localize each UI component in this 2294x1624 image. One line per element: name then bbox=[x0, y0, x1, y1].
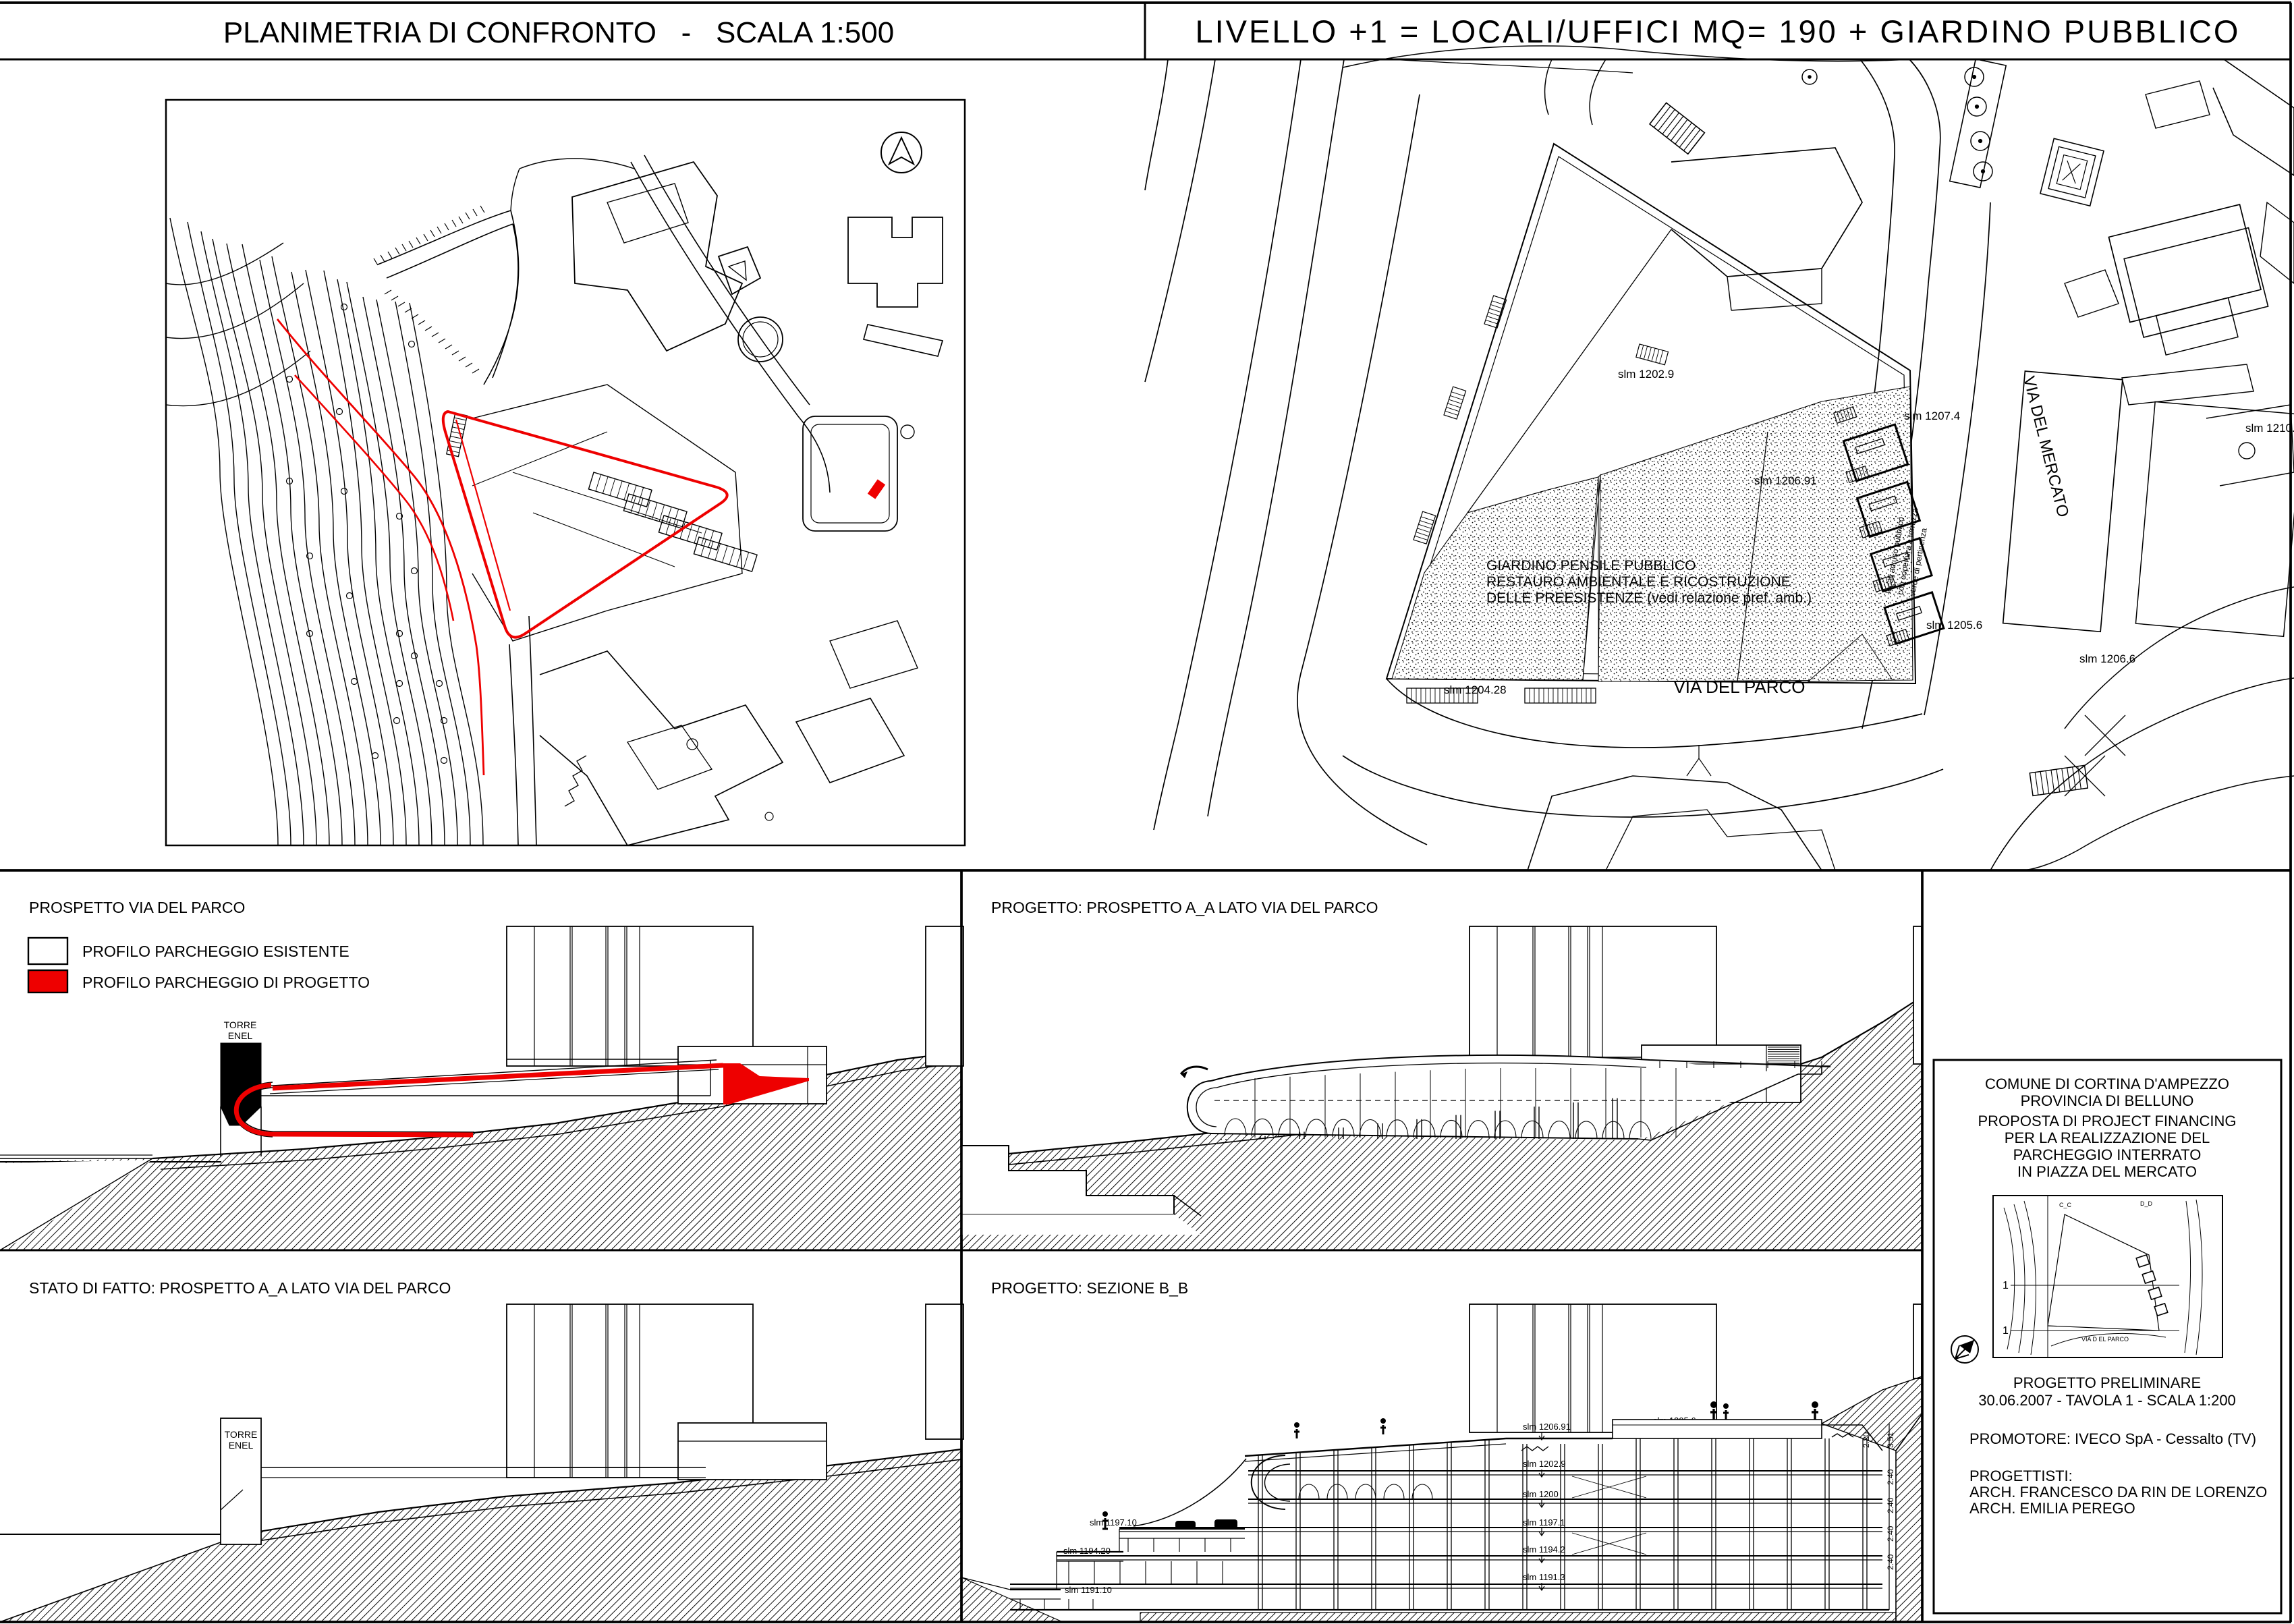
svg-text:PER LA REALIZZAZIONE DEL: PER LA REALIZZAZIONE DEL bbox=[2005, 1129, 2210, 1146]
svg-text:ENEL: ENEL bbox=[229, 1440, 254, 1451]
svg-text:slm 1200: slm 1200 bbox=[1523, 1489, 1559, 1499]
svg-text:STATO DI FATTO: PROSPETTO A_A: STATO DI FATTO: PROSPETTO A_A LATO VIA D… bbox=[29, 1279, 451, 1297]
svg-text:2.40: 2.40 bbox=[1886, 1525, 1895, 1542]
svg-text:TORRE: TORRE bbox=[225, 1429, 258, 1440]
svg-text:PROSPETTO VIA DEL PARCO: PROSPETTO VIA DEL PARCO bbox=[29, 899, 245, 916]
svg-text:VIA D EL PARCO: VIA D EL PARCO bbox=[2081, 1336, 2129, 1343]
svg-text:D_D: D_D bbox=[2140, 1200, 2153, 1207]
svg-text:TORRE: TORRE bbox=[224, 1019, 257, 1030]
svg-text:slm 1204.28: slm 1204.28 bbox=[1444, 683, 1507, 696]
svg-text:ARCH. FRANCESCO DA RIN DE LORE: ARCH. FRANCESCO DA RIN DE LORENZO bbox=[1969, 1484, 2267, 1501]
svg-text:PROGETTO: PROSPETTO A_A LATO V: PROGETTO: PROSPETTO A_A LATO VIA DEL PAR… bbox=[991, 899, 1378, 916]
svg-text:PARCHEGGIO INTERRATO: PARCHEGGIO INTERRATO bbox=[2013, 1146, 2202, 1163]
svg-text:1: 1 bbox=[2003, 1325, 2009, 1337]
svg-text:LIVELLO +1 = LOCALI/UFFICI MQ=: LIVELLO +1 = LOCALI/UFFICI MQ= 190 + GIA… bbox=[1195, 13, 2240, 49]
svg-text:2.40: 2.40 bbox=[1886, 1497, 1895, 1513]
svg-text:PLANIMETRIA DI CONFRONTO -: PLANIMETRIA DI CONFRONTO - SCALA 1:500 bbox=[223, 16, 894, 49]
svg-text:slm 1207.4: slm 1207.4 bbox=[1904, 410, 1960, 422]
svg-text:slm 1206.91: slm 1206.91 bbox=[1754, 474, 1817, 487]
svg-text:slm 1202.9: slm 1202.9 bbox=[1618, 368, 1674, 381]
svg-text:2.40: 2.40 bbox=[1886, 1469, 1895, 1485]
svg-text:slm 1205.6: slm 1205.6 bbox=[1926, 619, 1982, 632]
svg-text:C_C: C_C bbox=[2059, 1202, 2072, 1208]
svg-text:slm 1191.3: slm 1191.3 bbox=[1523, 1572, 1565, 1582]
svg-text:slm 1206.91: slm 1206.91 bbox=[1523, 1422, 1571, 1432]
svg-text:2.40: 2.40 bbox=[1886, 1554, 1895, 1570]
svg-text:slm 1206.6: slm 1206.6 bbox=[2079, 652, 2135, 665]
svg-text:slm 1191.10: slm 1191.10 bbox=[1065, 1585, 1112, 1595]
svg-text:COMUNE DI CORTINA D'AMPEZZO: COMUNE DI CORTINA D'AMPEZZO bbox=[1985, 1075, 2229, 1092]
svg-text:GIARDINO PENSILE PUBBLICO: GIARDINO PENSILE PUBBLICO bbox=[1486, 558, 1696, 573]
svg-text:2.20: 2.20 bbox=[1862, 1432, 1871, 1448]
svg-text:ENEL: ENEL bbox=[228, 1030, 253, 1041]
svg-text:PROFILO PARCHEGGIO DI PROGETTO: PROFILO PARCHEGGIO DI PROGETTO bbox=[82, 974, 370, 991]
svg-text:slm 1210.2: slm 1210.2 bbox=[2245, 422, 2294, 435]
svg-text:VIA DEL PARCO: VIA DEL PARCO bbox=[1673, 677, 1805, 697]
svg-text:PROGETTO: SEZIONE B_B: PROGETTO: SEZIONE B_B bbox=[991, 1279, 1188, 1297]
svg-text:DELLE PREESISTENZE (vedi relaz: DELLE PREESISTENZE (vedi relazione pref.… bbox=[1486, 590, 1812, 606]
svg-text:ARCH. EMILIA PEREGO: ARCH. EMILIA PEREGO bbox=[1969, 1500, 2135, 1517]
svg-text:PROGETTISTI:: PROGETTISTI: bbox=[1969, 1467, 2073, 1484]
svg-text:IN PIAZZA DEL MERCATO: IN PIAZZA DEL MERCATO bbox=[2017, 1163, 2197, 1180]
svg-text:PROVINCIA DI BELLUNO: PROVINCIA DI BELLUNO bbox=[2021, 1092, 2194, 1109]
svg-text:1: 1 bbox=[2003, 1280, 2009, 1291]
svg-text:PROPOSTA DI PROJECT FINANCING: PROPOSTA DI PROJECT FINANCING bbox=[1978, 1113, 2236, 1129]
svg-text:RESTAURO AMBIENTALE E RICOSTRU: RESTAURO AMBIENTALE E RICOSTRUZIONE bbox=[1486, 574, 1791, 590]
svg-text:slm 1202.9: slm 1202.9 bbox=[1523, 1459, 1566, 1469]
svg-text:PROFILO PARCHEGGIO ESISTENTE: PROFILO PARCHEGGIO ESISTENTE bbox=[82, 943, 349, 960]
svg-text:PROMOTORE: IVECO SpA - Cessalt: PROMOTORE: IVECO SpA - Cessalto (TV) bbox=[1969, 1430, 2256, 1447]
svg-text:slm 1194.2: slm 1194.2 bbox=[1523, 1544, 1565, 1555]
svg-text:slm 1197.1: slm 1197.1 bbox=[1523, 1517, 1565, 1528]
svg-text:3.51: 3.51 bbox=[1886, 1432, 1895, 1448]
svg-text:30.06.2007 - TAVOLA 1 - SCALA: 30.06.2007 - TAVOLA 1 - SCALA 1:200 bbox=[1978, 1392, 2236, 1409]
svg-text:PROGETTO PRELIMINARE: PROGETTO PRELIMINARE bbox=[2013, 1374, 2201, 1391]
svg-text:slm 1194.20: slm 1194.20 bbox=[1063, 1546, 1111, 1556]
svg-text:slm 1197.10: slm 1197.10 bbox=[1090, 1517, 1137, 1528]
